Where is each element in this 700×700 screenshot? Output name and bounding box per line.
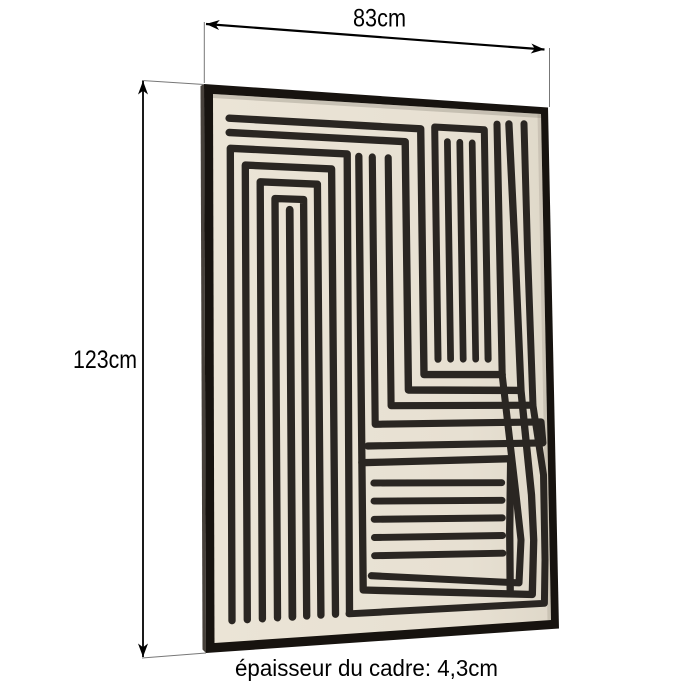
svg-text:83cm: 83cm: [353, 5, 406, 33]
svg-text:123cm: 123cm: [73, 346, 137, 374]
svg-text:épaisseur du cadre: 4,3cm: épaisseur du cadre: 4,3cm: [235, 655, 498, 681]
